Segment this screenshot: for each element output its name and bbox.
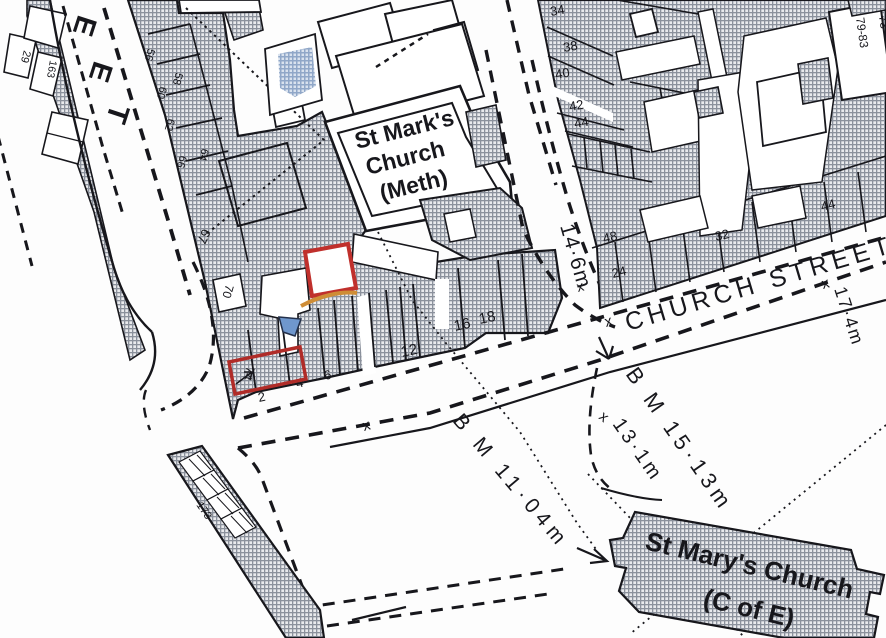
svg-text:40: 40 <box>554 65 571 82</box>
svg-text:38: 38 <box>562 38 579 55</box>
svg-text:34: 34 <box>549 2 566 19</box>
svg-text:18: 18 <box>477 308 497 328</box>
svg-text:16: 16 <box>452 315 472 335</box>
svg-text:44: 44 <box>573 114 590 131</box>
svg-text:42: 42 <box>568 97 585 114</box>
svg-text:12: 12 <box>399 341 419 361</box>
